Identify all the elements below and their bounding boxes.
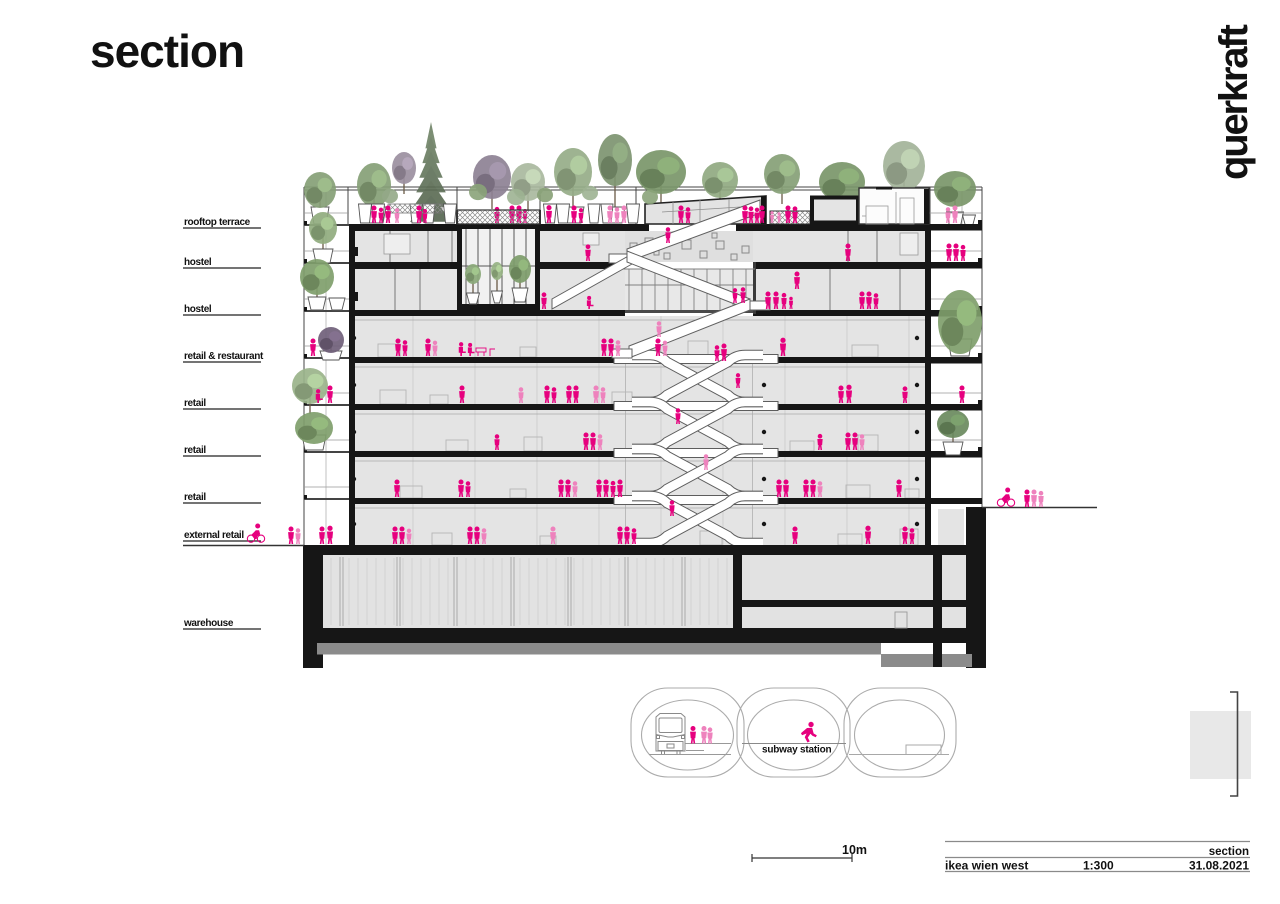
svg-text:section: section [1209, 846, 1249, 858]
svg-text:retail & restaurant: retail & restaurant [184, 351, 264, 362]
svg-text:ikea wien west: ikea wien west [945, 859, 1028, 873]
svg-text:rooftop terrace: rooftop terrace [184, 217, 251, 228]
svg-text:external retail: external retail [184, 530, 244, 541]
svg-text:subway station: subway station [762, 745, 832, 756]
svg-text:hostel: hostel [184, 304, 212, 315]
svg-text:warehouse: warehouse [183, 618, 234, 629]
svg-text:1:300: 1:300 [1083, 859, 1114, 873]
svg-text:section: section [90, 25, 244, 77]
svg-text:querkraft: querkraft [1212, 25, 1256, 180]
svg-text:31.08.2021: 31.08.2021 [1189, 859, 1249, 873]
svg-text:retail: retail [184, 398, 206, 409]
svg-text:hostel: hostel [184, 257, 212, 268]
svg-text:retail: retail [184, 492, 206, 503]
svg-text:10m: 10m [842, 843, 867, 857]
svg-text:retail: retail [184, 445, 206, 456]
